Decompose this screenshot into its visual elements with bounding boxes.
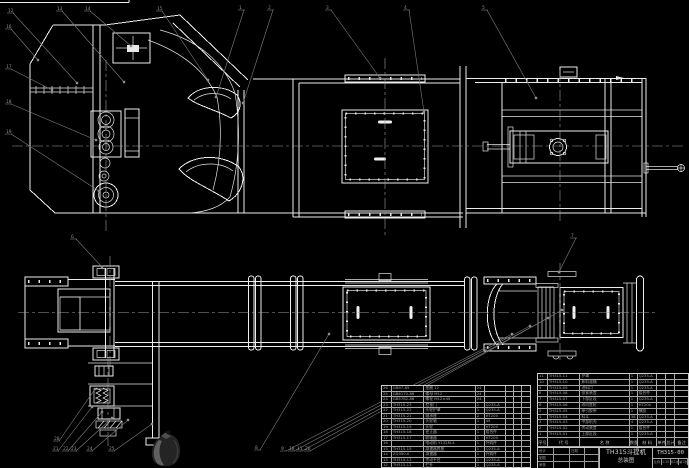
balloon-number: 15 (157, 6, 163, 12)
leader-arrow (91, 406, 93, 408)
leader-line (331, 10, 380, 78)
cad-drawing-canvas: 1213141512345161718196720212223242589101… (0, 0, 689, 468)
balloon-number: 5 (482, 5, 485, 11)
leader-arrow (561, 309, 563, 311)
leader-line (260, 334, 329, 450)
signature-cell (585, 455, 599, 462)
signature-cell: 日期 (570, 448, 585, 455)
balloon-number: 13 (57, 6, 63, 12)
leader-arrow (242, 102, 244, 104)
head-section (30, 25, 463, 213)
footer-cell: 第1张 (679, 459, 688, 465)
top-view-elevation (12, 15, 686, 237)
leader-arrow (51, 89, 53, 91)
leader-arrow (558, 271, 560, 273)
bom-header-cell: 序号 (538, 438, 548, 448)
balloon-number: 12 (8, 8, 14, 14)
boot-section-plan (484, 272, 637, 360)
balloon-number: 11 (297, 446, 303, 452)
bom-cell: 12 (382, 463, 392, 468)
leader-arrow (379, 77, 381, 79)
balloon-number: 6 (71, 234, 74, 240)
takeup-device (483, 127, 685, 173)
leader-line (13, 13, 77, 83)
leader-line (162, 11, 208, 80)
leader-arrow (94, 388, 96, 390)
signature-cell (585, 448, 599, 455)
drawing-number-cell: TH315-00 比例1:10共1张第1张 (653, 448, 688, 468)
signature-cell (554, 462, 570, 468)
balloon-number: 3 (326, 5, 329, 11)
signature-cell (554, 455, 570, 462)
leader-line (487, 10, 536, 98)
leader-line (11, 134, 99, 191)
leader-arrow (111, 417, 113, 419)
signature-row: 审核 (538, 462, 599, 468)
bom-cell: 栏杆 (424, 463, 475, 468)
balloon-number: 10 (289, 446, 295, 452)
leader-line (243, 10, 273, 103)
leader-arrow (127, 419, 129, 421)
middle-casing (238, 75, 463, 218)
balloon-number: 22 (63, 446, 69, 452)
balloon-number: 7 (571, 233, 574, 239)
footer-cell: 比例 (653, 459, 662, 465)
leader-line (59, 389, 95, 441)
balloon-number: 8 (255, 445, 258, 451)
bom-header-cell: 备注 (675, 438, 688, 448)
leader-line (76, 239, 102, 267)
drawing-frame-corner (0, 0, 129, 3)
bom-cell (522, 463, 530, 468)
balloon-number: 23 (71, 446, 77, 452)
bom-header-cell: 名 称 (580, 438, 629, 448)
leader-arrow (98, 190, 100, 192)
balloon-number: 4 (404, 5, 407, 11)
balloon-number: 25 (109, 446, 115, 452)
leader-line (11, 29, 38, 60)
leader-line (90, 11, 131, 46)
balloon-number: 14 (85, 6, 91, 12)
balloon-number: 21 (53, 446, 59, 452)
balloon-number: 19 (6, 129, 12, 135)
bom-header-cell: 代 号 (548, 438, 581, 448)
discharge-hood-and-buckets (105, 15, 248, 213)
leader-arrow (95, 139, 97, 141)
balloon-number: 9 (281, 446, 284, 452)
signature-cell: 制图 (538, 455, 554, 462)
signature-cell (554, 448, 570, 455)
bom-cell: TH315-12 (392, 463, 425, 468)
bom-table-right: 11TH315-11护罩1Q235-A10TH315-10卸料溜槽1Q235-A… (537, 373, 689, 447)
drive-sprocket-stack (91, 109, 139, 207)
leader-arrow (130, 45, 132, 47)
leader-arrow (215, 96, 217, 98)
leader-line (11, 104, 96, 140)
balloon-number: 20 (54, 436, 60, 442)
leader-line (76, 418, 112, 451)
logo-stamp (152, 430, 180, 466)
bom-table-left: 26GB97-85垫圈 122425GB6170-86螺母 M122424GB5… (381, 385, 531, 468)
bom-header-row: 序号代 号名 称数量材 料单件总计备注 (538, 438, 688, 448)
leader-arrow (101, 411, 103, 413)
leader-arrow (423, 111, 425, 113)
drawing-type: 总装图 (600, 457, 652, 465)
leader-arrow (123, 81, 125, 83)
leader-line (11, 69, 52, 90)
balloon-number: 2 (268, 5, 271, 11)
leader-arrow (151, 423, 153, 425)
title-block: 设计日期制图审核 TH315斗提机 总装图 TH315-00 比例1:10共1张… (537, 447, 689, 468)
footer-cell: 共1张 (671, 459, 680, 465)
balloon-number: 24 (87, 446, 93, 452)
bom-cell (514, 463, 522, 468)
balloon-number: 17 (6, 64, 12, 70)
head-section-plan (25, 266, 119, 360)
balloon-number: 16 (6, 24, 12, 30)
bom-header-cell: 总计 (666, 438, 675, 448)
signature-row: 制图 (538, 455, 599, 462)
leader-arrow (535, 97, 537, 99)
leader-arrow (529, 325, 531, 327)
bom-header-cell: 材 料 (638, 438, 658, 448)
signature-cell (570, 462, 585, 468)
signature-cell (570, 455, 585, 462)
bom-header-cell: 数量 (630, 438, 638, 448)
bom-cell (506, 463, 514, 468)
signature-cell: 审核 (538, 462, 554, 468)
signature-row: 设计日期 (538, 448, 599, 455)
signature-grid: 设计日期制图审核 (538, 448, 600, 468)
footer-cell: 1:10 (662, 459, 671, 465)
leader-arrow (101, 266, 103, 268)
product-name: TH315斗提机 (600, 448, 652, 457)
title-block-footer: 比例1:10共1张第1张 (653, 459, 688, 465)
leader-arrow (76, 82, 78, 84)
signature-cell (585, 462, 599, 468)
leader-arrow (37, 59, 39, 61)
drawing-number: TH315-00 (653, 448, 688, 459)
leader-arrow (328, 333, 330, 335)
bom-header-cell: 单件 (657, 438, 666, 448)
balloon-number: 26 (305, 446, 311, 452)
leader-line (409, 10, 424, 112)
drawing-title-cell: TH315斗提机 总装图 (600, 448, 653, 468)
signature-cell: 设计 (538, 448, 554, 455)
bom-cell: Q235-A (485, 463, 507, 468)
bom-cell: 1 (476, 463, 485, 468)
balloon-number: 1 (239, 5, 242, 11)
leader-arrow (207, 79, 209, 81)
leader-line (559, 238, 576, 272)
balloon-number: 18 (6, 99, 12, 105)
bom-row: 12TH315-12栏杆1Q235-A (382, 463, 530, 468)
